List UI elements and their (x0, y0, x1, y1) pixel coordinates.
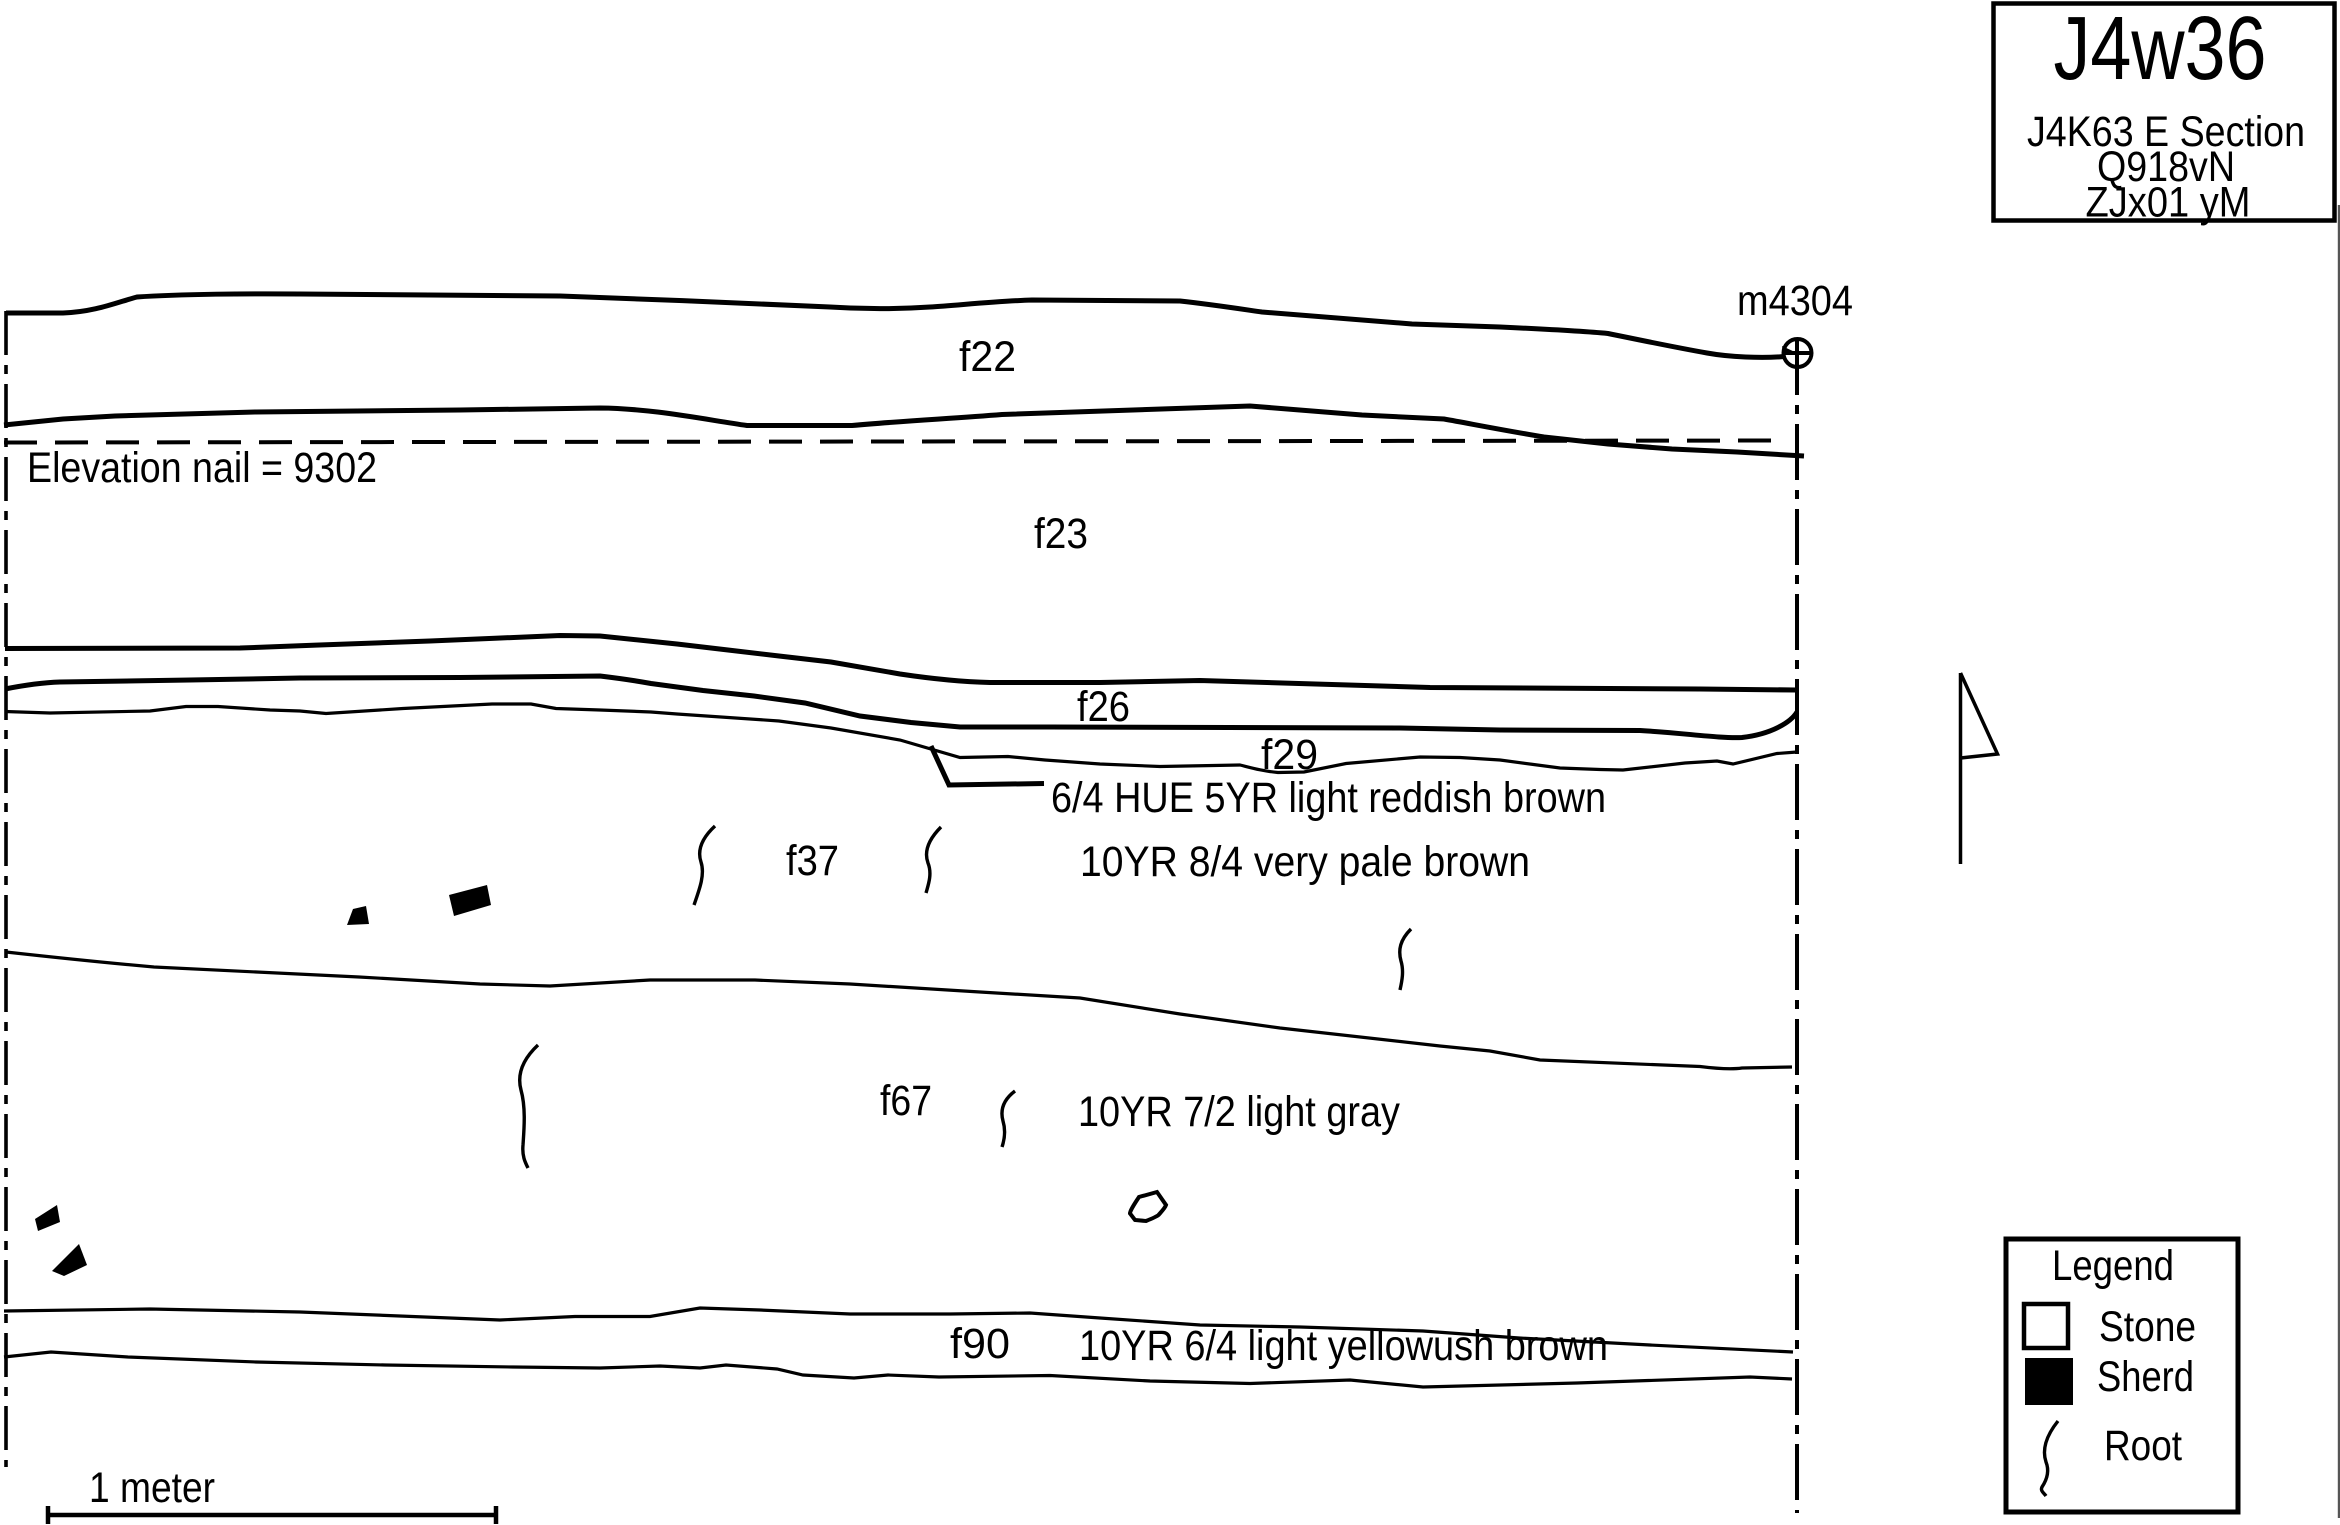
svg-text:ZJx01 yM: ZJx01 yM (2086, 179, 2251, 227)
svg-text:f37: f37 (786, 837, 839, 885)
svg-text:f67: f67 (880, 1077, 932, 1125)
svg-text:Elevation nail = 9302: Elevation nail = 9302 (27, 444, 377, 492)
svg-text:f23: f23 (1034, 510, 1088, 558)
svg-text:6/4 HUE 5YR light reddish brow: 6/4 HUE 5YR light reddish brown (1051, 774, 1606, 822)
svg-text:Sherd: Sherd (2097, 1353, 2194, 1401)
svg-text:f29: f29 (1261, 731, 1318, 779)
svg-text:f22: f22 (959, 333, 1016, 381)
svg-text:f90: f90 (950, 1320, 1010, 1368)
svg-text:10YR 8/4 very pale brown: 10YR 8/4 very pale brown (1080, 838, 1530, 886)
svg-text:Legend: Legend (2052, 1242, 2174, 1290)
svg-text:f26: f26 (1077, 683, 1130, 731)
svg-text:Stone: Stone (2099, 1303, 2196, 1351)
svg-text:Root: Root (2104, 1422, 2182, 1470)
svg-text:10YR 6/4 light yellowush brown: 10YR 6/4 light yellowush brown (1079, 1322, 1608, 1370)
svg-text:1 meter: 1 meter (89, 1464, 215, 1512)
svg-text:m4304: m4304 (1737, 277, 1853, 325)
svg-text:10YR 7/2 light gray: 10YR 7/2 light gray (1078, 1088, 1400, 1136)
svg-text:J4w36: J4w36 (2054, 0, 2267, 99)
